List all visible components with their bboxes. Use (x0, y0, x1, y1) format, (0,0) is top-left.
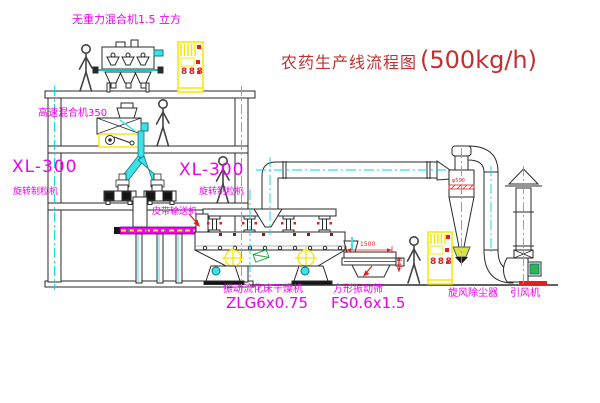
sieve-width-dimension: 1500 (360, 242, 375, 248)
granulator-mid-model-label: XL-300 (179, 162, 244, 179)
fluid-bed-dryer-machine (189, 209, 345, 285)
gravity-mixer-label: 无重力混合机1.5 立方 (72, 14, 181, 25)
title-capacity: (500kg/h) (420, 46, 537, 74)
granulator-mid-machine (144, 185, 176, 205)
granulator-left-model-label: XL-300 (12, 159, 77, 176)
title-text: 农药生产线流程图 (281, 49, 417, 73)
granulator-left-machine (104, 185, 136, 205)
granulator-chute (133, 197, 147, 227)
diagram-title: 农药生产线流程图 (500kg/h) (281, 46, 537, 74)
cyclone-diameter-dimension: φ500 (452, 179, 465, 184)
granulator-left-name-label: 旋转制粒机 (13, 188, 58, 197)
cabinet-left-display: 888 (181, 68, 204, 77)
dryer-model-label: ZLG6x0.75 (226, 296, 308, 311)
person-second-floor (157, 100, 170, 146)
person-ground (408, 237, 421, 283)
person-top-floor (80, 45, 93, 91)
sieve-model-label: FS0.6x1.5 (331, 296, 405, 311)
belt-conveyor-label: 皮带输送机 (152, 208, 197, 217)
sieve-height-dimension: 545 (395, 258, 401, 269)
high-speed-mixer-label: 高速混合机350 (38, 109, 107, 119)
fan-label: 引风机 (510, 289, 540, 299)
granulator-mid-name-label: 旋转制粒机 (199, 188, 244, 197)
exhaust-duct (262, 161, 450, 209)
induced-draft-fan-machine (504, 258, 548, 285)
cyclone-label: 旋风除尘器 (448, 289, 498, 299)
pesticide-line-flow-diagram: 农药生产线流程图 (500kg/h) 无重力混合机1.5 立方 高速混合机350… (0, 0, 600, 403)
gravity-mixer (93, 40, 163, 92)
cabinet-right-display: 888 (430, 258, 453, 267)
